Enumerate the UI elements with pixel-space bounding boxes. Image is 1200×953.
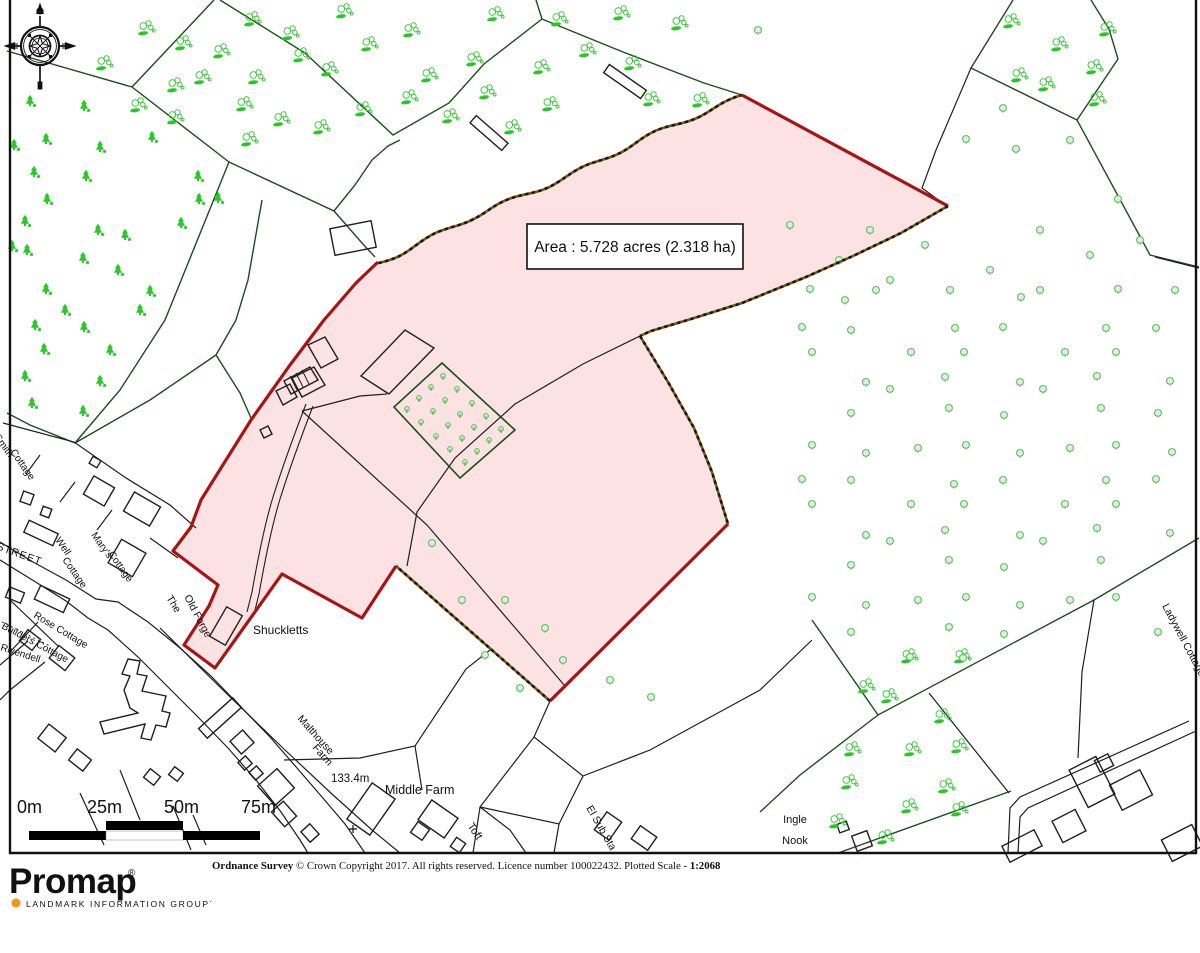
svg-text:0m: 0m — [17, 797, 42, 817]
svg-text:Area : 5.728 acres (2.318 ha): Area : 5.728 acres (2.318 ha) — [534, 239, 736, 256]
svg-text:Ingle: Ingle — [783, 814, 807, 826]
svg-text:75m: 75m — [241, 797, 276, 817]
svg-text:Shuckletts: Shuckletts — [253, 623, 308, 637]
svg-text:®: ® — [128, 868, 136, 879]
svg-text:Nook: Nook — [782, 835, 808, 847]
svg-text:25m: 25m — [87, 797, 122, 817]
svg-text:Promap: Promap — [9, 862, 136, 901]
svg-text:Ordnance Survey © Crown Copyr: Ordnance Survey © Crown Copyright 2017. … — [212, 860, 721, 872]
svg-text:50m: 50m — [164, 797, 199, 817]
svg-text:Middle Farm: Middle Farm — [385, 783, 454, 797]
svg-text:LANDMARK INFORMATION GROUP´: LANDMARK INFORMATION GROUP´ — [26, 899, 214, 909]
svg-text:133.4m: 133.4m — [331, 773, 369, 785]
